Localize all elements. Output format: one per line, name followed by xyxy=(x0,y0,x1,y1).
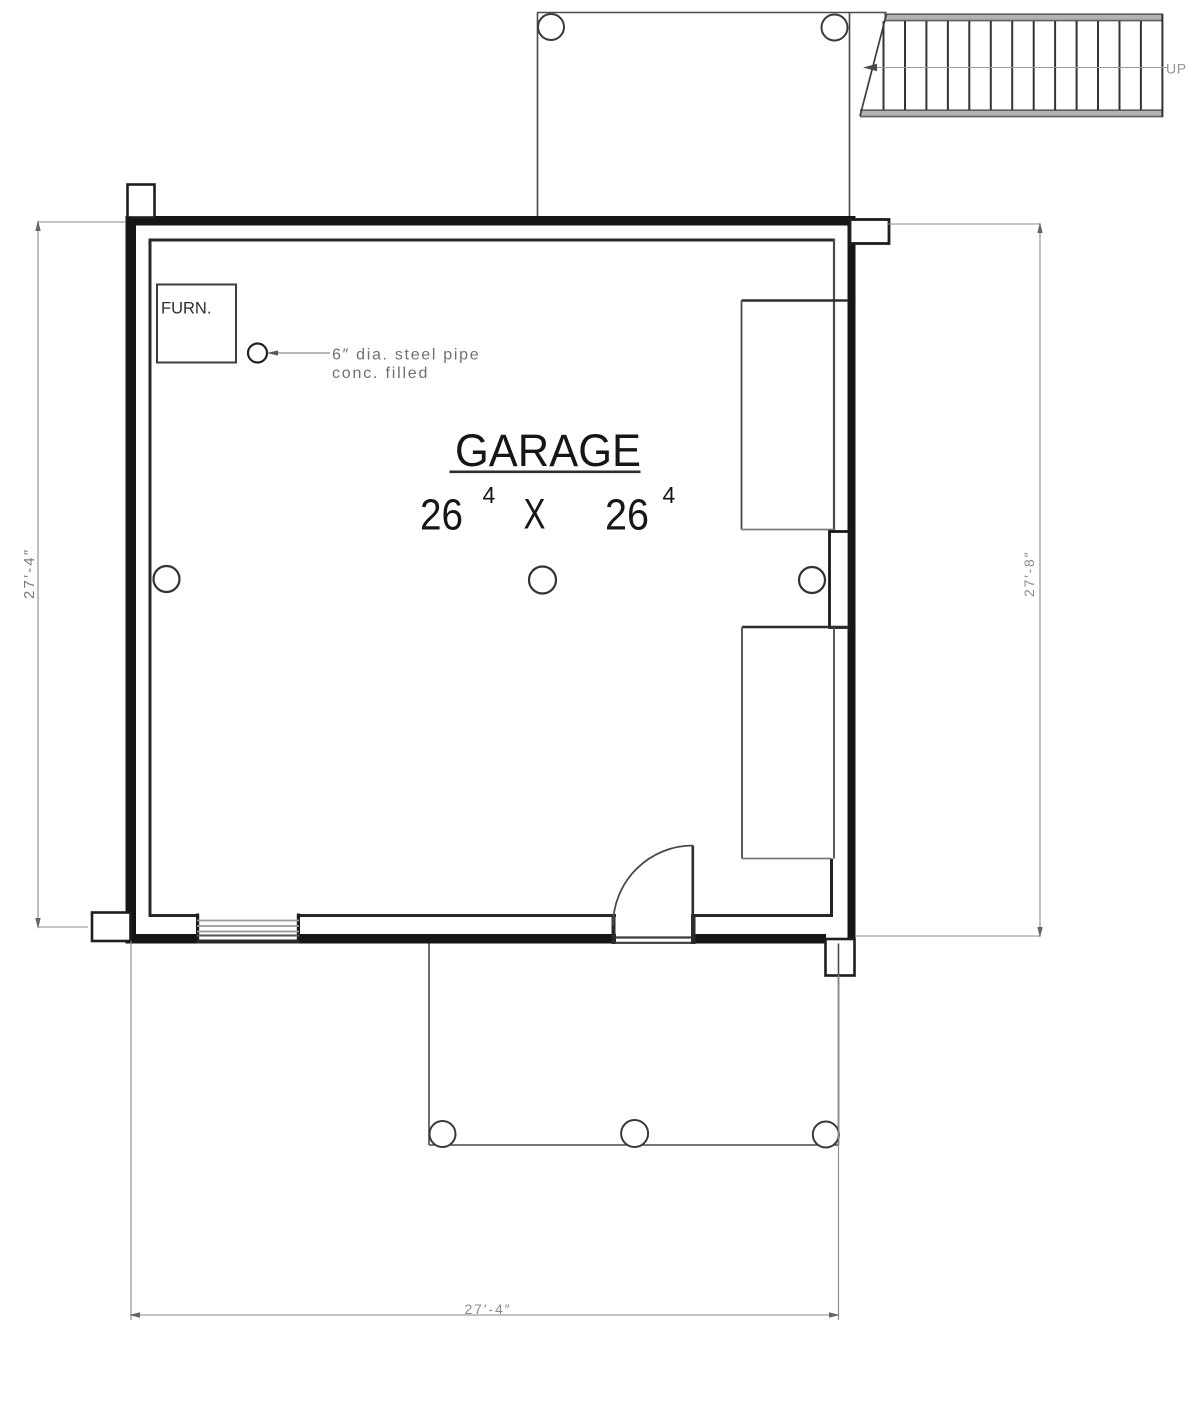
svg-text:6″ dia. steel pipe: 6″ dia. steel pipe xyxy=(332,347,480,364)
svg-text:X: X xyxy=(524,491,546,539)
svg-text:27′-4″: 27′-4″ xyxy=(464,1301,511,1317)
svg-text:FURN.: FURN. xyxy=(161,300,211,318)
svg-text:4: 4 xyxy=(483,482,496,508)
svg-text:4: 4 xyxy=(663,482,676,508)
svg-text:27′-8″: 27′-8″ xyxy=(1021,551,1037,597)
svg-text:conc. filled: conc. filled xyxy=(332,365,429,382)
svg-text:26: 26 xyxy=(605,491,649,540)
svg-text:27′-4″: 27′-4″ xyxy=(21,548,38,599)
svg-text:26: 26 xyxy=(420,491,463,540)
svg-text:UP: UP xyxy=(1166,61,1187,77)
svg-text:GARAGE: GARAGE xyxy=(455,425,641,476)
